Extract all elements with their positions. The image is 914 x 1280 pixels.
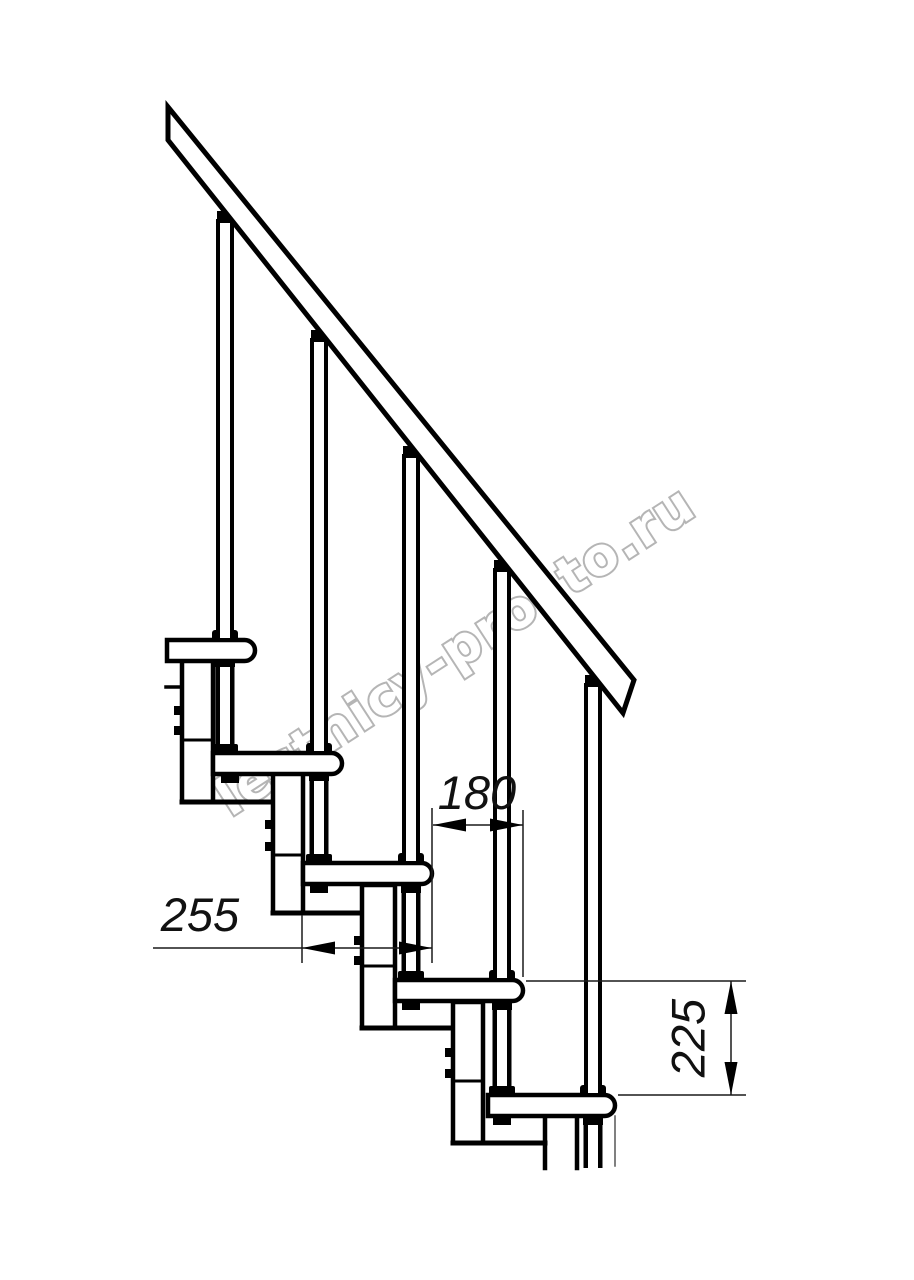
baluster — [312, 340, 326, 753]
arrow-left-icon — [302, 942, 335, 955]
dimension-label-225: 225 — [661, 998, 714, 1078]
balusters — [217, 211, 601, 1095]
tread — [167, 640, 255, 661]
bolt-icon — [265, 820, 274, 829]
dimension-label-180: 180 — [438, 766, 516, 819]
support-column — [182, 657, 213, 802]
tread — [488, 1095, 615, 1116]
rod — [402, 884, 407, 972]
arrow-left-icon — [433, 819, 466, 832]
dimension-rise: 225 — [526, 981, 746, 1095]
tread — [213, 753, 342, 774]
baluster — [586, 685, 600, 1095]
handrail — [168, 107, 634, 713]
tread — [303, 863, 432, 884]
rod — [416, 884, 421, 972]
staircase-technical-drawing: lestnicy-prosto.ru — [0, 0, 914, 1280]
rod — [230, 661, 235, 748]
bolt-icon — [445, 1048, 454, 1057]
rod — [216, 661, 221, 748]
rod — [324, 774, 329, 855]
bolt-icon — [265, 842, 274, 851]
baluster — [218, 221, 232, 640]
dimension-label-255: 255 — [160, 888, 240, 941]
bolt-icon — [174, 706, 183, 715]
bolt-icon — [174, 726, 183, 735]
support-column — [453, 1002, 483, 1143]
arrow-up-icon — [725, 981, 738, 1014]
bolt-icon — [354, 936, 363, 945]
arrow-down-icon — [725, 1062, 738, 1095]
rod — [507, 1001, 512, 1086]
support-column — [273, 772, 303, 913]
tread — [395, 980, 523, 1001]
bolt-icon — [354, 956, 363, 965]
arrow-right-icon — [399, 942, 432, 955]
drawing-canvas: lestnicy-prosto.ru — [0, 0, 914, 1280]
rod — [493, 1001, 498, 1086]
rod — [310, 774, 315, 855]
bolt-icon — [445, 1069, 454, 1078]
support-column — [362, 885, 395, 1028]
baluster — [404, 456, 418, 863]
